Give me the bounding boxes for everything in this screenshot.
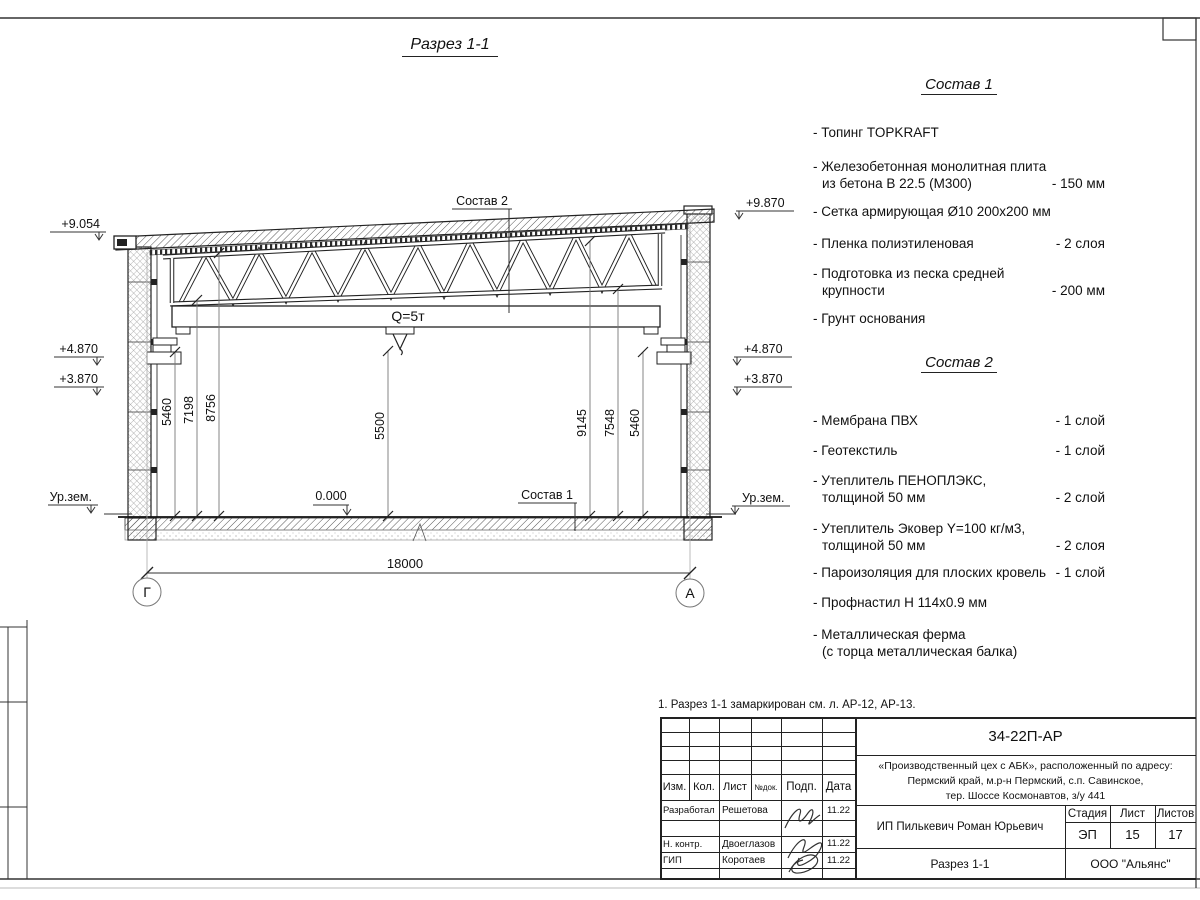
dim-left-2: 7198: [182, 396, 196, 424]
stamp-line: [660, 820, 855, 821]
sostav1-heading-text: Состав 1: [921, 76, 997, 95]
elev-left-2: +4.870: [59, 342, 98, 356]
dim-right-1: 9145: [575, 409, 589, 437]
client: ИП Пилькевич Роман Юрьевич: [855, 806, 1065, 847]
stamp-line: [660, 868, 855, 869]
item-text: - Железобетонная монолитная плита: [813, 158, 1105, 175]
col-ndok: №док.: [751, 776, 781, 798]
material-item: - Пароизоляция для плоских кровель - 1 с…: [813, 564, 1105, 581]
sheet-value: 15: [1110, 822, 1155, 847]
crane-capacity-label: Q=5т: [391, 308, 425, 324]
stamp-line: [781, 717, 782, 879]
row-role: Разработал: [663, 801, 718, 819]
sheets-label: Листов: [1155, 806, 1196, 821]
doc-number: 34-22П-АР: [855, 720, 1196, 753]
crane-trolley: [386, 327, 414, 334]
signature-1: [785, 809, 820, 828]
row-name: Двоеглазов: [722, 837, 780, 851]
col-kol: Кол.: [689, 776, 719, 798]
vertical-dimensions: 5460 7198 8756 5500 9145 7548 5460: [160, 236, 648, 521]
signatures: [785, 809, 822, 873]
dim-right-3: 5460: [628, 409, 642, 437]
material-item: - Металлическая ферма (с торца металличе…: [813, 626, 1105, 660]
item-text: - Утеплитель Эковер Y=100 кг/м3,: [813, 520, 1105, 537]
sheet: { "sheet": { "title": "Разрез 1-1", "not…: [0, 0, 1200, 900]
col-list: Лист: [719, 776, 751, 798]
item-value: - 1 слой: [1056, 442, 1105, 459]
row-role: Н. контр.: [663, 837, 718, 851]
material-item: - Геотекстиль - 1 слой: [813, 442, 1105, 459]
row-date: 11.22: [822, 803, 855, 818]
col-izm: Изм.: [660, 776, 689, 798]
sostav2-heading-text: Состав 2: [921, 354, 997, 373]
item-value: - 1 слой: [1056, 564, 1105, 581]
col-podp: Подп.: [781, 776, 822, 798]
stamp-sheet-title: Разрез 1-1: [855, 849, 1065, 878]
axis-right-label: А: [685, 585, 695, 601]
sheet-label: Лист: [1110, 806, 1155, 821]
crane: Q=5т: [172, 306, 660, 355]
material-item: - Сетка армирующая Ø10 200х200 мм: [813, 203, 1105, 220]
elev-right-1: +9.870: [746, 196, 785, 210]
right-wall: [687, 213, 710, 517]
project-line-3: тер. Шоссе Космонавтов, з/у 441: [858, 788, 1193, 803]
stamp-line: [660, 878, 1196, 880]
sand-bed: [125, 530, 712, 540]
item-text: - Топинг TOPKRAFT: [813, 124, 1105, 141]
material-item: - Профнастил Н 114х0.9 мм: [813, 594, 1105, 611]
material-item: - Утеплитель ПЕНОПЛЭКС, толщиной 50 мм -…: [813, 472, 1105, 506]
frame-corner-box: [1163, 18, 1196, 40]
material-item: - Пленка полиэтиленовая - 2 слоя: [813, 235, 1105, 252]
project-line-2: Пермский край, м.р-н Пермский, с.п. Сави…: [858, 773, 1193, 788]
company: ООО "Альянс": [1065, 849, 1196, 878]
leader-sostav1: Состав 1: [521, 488, 573, 502]
stage-label: Стадия: [1065, 806, 1110, 821]
elev-right-4: Ур.зем.: [742, 491, 784, 505]
item-text2: (с торца металлическая балка): [813, 643, 1105, 660]
sostav1-heading: Состав 1: [813, 76, 1105, 93]
item-value: - 200 мм: [1052, 282, 1105, 299]
foundation-left: [128, 518, 156, 540]
sheet-note: 1. Разрез 1-1 замаркирован см. л. АР-12,…: [658, 699, 916, 711]
crane-hook: [393, 334, 407, 349]
drawing-title: Разрез 1-1: [402, 36, 498, 57]
dim-left-3: 8756: [204, 394, 218, 422]
item-text: - Металлическая ферма: [813, 626, 1105, 643]
item-text: - Сетка армирующая Ø10 200х200 мм: [813, 203, 1105, 220]
item-text: - Утеплитель ПЕНОПЛЭКС,: [813, 472, 1105, 489]
elev-right-2: +4.870: [744, 342, 783, 356]
sostav2-heading: Состав 2: [813, 354, 1105, 371]
item-text: - Подготовка из песка средней: [813, 265, 1105, 282]
item-value: - 1 слой: [1056, 412, 1105, 429]
filing-strip: [0, 620, 27, 879]
stage-value: ЭП: [1065, 822, 1110, 847]
row-role: ГИП: [663, 853, 718, 867]
left-wall: [128, 247, 151, 517]
dim-left-1: 5460: [160, 398, 174, 426]
item-value: - 2 слоя: [1056, 235, 1105, 252]
dim-right-2: 7548: [603, 409, 617, 437]
item-value: - 2 слой: [1056, 489, 1105, 506]
material-item: - Железобетонная монолитная плита из бет…: [813, 158, 1105, 192]
col-data: Дата: [822, 776, 855, 798]
sheets-value: 17: [1155, 822, 1196, 847]
material-item: - Топинг TOPKRAFT: [813, 124, 1105, 141]
stamp-line: [855, 755, 1196, 756]
item-text: - Грунт основания: [813, 310, 1105, 327]
crane-corbels: [147, 338, 691, 364]
zero-level-label: 0.000: [315, 489, 346, 503]
material-item: - Подготовка из песка средней крупности …: [813, 265, 1105, 299]
span-dim-text: 18000: [387, 556, 423, 571]
row-name: Решетова: [722, 801, 780, 819]
elev-left-1: +9.054: [61, 217, 100, 231]
leader-sostav2: Состав 2: [456, 194, 508, 208]
material-item: - Утеплитель Эковер Y=100 кг/м3, толщино…: [813, 520, 1105, 554]
row-name: Коротаев: [722, 853, 780, 867]
foundation-right: [684, 518, 712, 540]
elev-left-3: +3.870: [59, 372, 98, 386]
stamp-line: [660, 717, 662, 879]
project-line-1: «Производственный цех с АБК», расположен…: [858, 758, 1193, 773]
elev-left-4: Ур.зем.: [50, 490, 92, 504]
stamp-line: [719, 717, 720, 879]
row-date: 11.22: [822, 837, 855, 850]
elev-right-3: +3.870: [744, 372, 783, 386]
item-value: - 150 мм: [1052, 175, 1105, 192]
item-text: - Профнастил Н 114х0.9 мм: [813, 594, 1105, 611]
item-value: - 2 слоя: [1056, 537, 1105, 554]
stamp-line: [660, 717, 1196, 719]
material-item: - Грунт основания: [813, 310, 1105, 327]
material-item: - Мембрана ПВХ - 1 слой: [813, 412, 1105, 429]
dim-mid: 5500: [373, 412, 387, 440]
row-date: 11.22: [822, 854, 855, 867]
axis-left-label: Г: [143, 584, 151, 600]
